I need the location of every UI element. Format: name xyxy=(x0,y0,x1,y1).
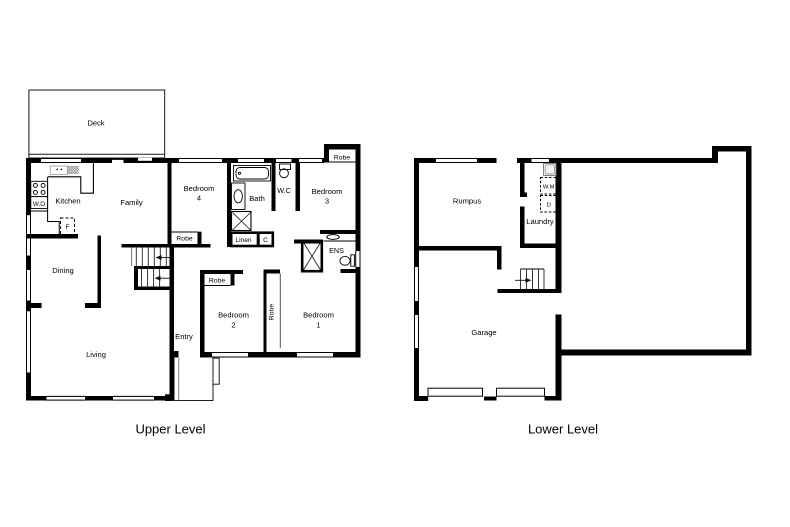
svg-text:Dining: Dining xyxy=(52,266,74,275)
svg-text:Rumpus: Rumpus xyxy=(453,196,481,205)
svg-text:C: C xyxy=(263,237,268,244)
svg-text:W.C: W.C xyxy=(277,186,291,195)
svg-text:Bath: Bath xyxy=(249,194,265,203)
svg-text:Bedroom: Bedroom xyxy=(303,311,334,320)
svg-text:Garage: Garage xyxy=(471,328,496,337)
svg-text:Deck: Deck xyxy=(87,119,104,128)
svg-text:3: 3 xyxy=(325,196,329,205)
svg-text:Upper Level: Upper Level xyxy=(135,422,205,437)
svg-text:D: D xyxy=(547,203,551,209)
svg-text:2: 2 xyxy=(231,320,235,329)
svg-text:Living: Living xyxy=(86,350,106,359)
svg-text:Entry: Entry xyxy=(175,332,193,341)
svg-text:ENS: ENS xyxy=(329,246,344,255)
svg-text:F: F xyxy=(66,224,70,231)
svg-text:W.M: W.M xyxy=(543,185,555,191)
svg-text:Robe: Robe xyxy=(334,155,350,162)
svg-text:1: 1 xyxy=(316,320,320,329)
svg-text:Linen: Linen xyxy=(235,237,251,244)
svg-text:Bedroom: Bedroom xyxy=(312,187,343,196)
svg-text:Robe: Robe xyxy=(209,277,225,284)
svg-text:Lower Level: Lower Level xyxy=(528,422,598,437)
svg-text:Family: Family xyxy=(120,198,143,207)
svg-text:Robe: Robe xyxy=(269,304,276,320)
svg-text:Bedroom: Bedroom xyxy=(184,184,215,193)
svg-text:Robe: Robe xyxy=(176,236,192,243)
svg-text:Kitchen: Kitchen xyxy=(55,196,80,205)
svg-text:4: 4 xyxy=(197,193,201,202)
svg-text:Bedroom: Bedroom xyxy=(218,311,249,320)
svg-text:W.O: W.O xyxy=(33,201,45,208)
svg-text:Laundry: Laundry xyxy=(526,217,554,226)
